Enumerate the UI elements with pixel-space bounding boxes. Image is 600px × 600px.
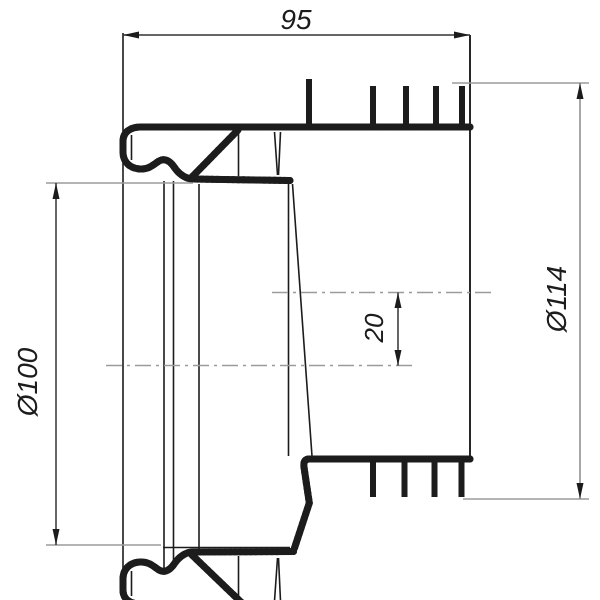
dim-text-20: 20 [359,313,389,343]
dim-text-95: 95 [280,4,312,35]
arrowhead-d100-bottom [53,529,60,545]
dim-text-d100: Ø100 [12,347,43,417]
bottom-rib-edge-a [275,558,278,600]
bottom-rib-edge-b [279,558,281,600]
dim-text-d114: Ø114 [541,266,572,333]
arrowhead-95-left [123,32,139,39]
dimension-diameter-114: Ø114 [541,83,584,499]
outlet-bottom-wall [295,459,471,548]
wall-bead-texture [123,79,470,600]
edge-lines [123,33,470,600]
part-section-walls [123,79,470,600]
dimension-diameter-100: Ø100 [12,183,60,545]
dimension-length-95: 95 [123,4,470,39]
top-rib-edge-b [279,132,281,175]
arrowhead-d114-top [577,83,584,99]
cone-silhouette-edge [293,184,313,456]
technical-drawing: 95 Ø100 Ø114 20 [0,0,600,600]
extension-lines [46,83,589,545]
dimension-offset-20: 20 [359,293,402,366]
arrowhead-d100-top [53,183,60,199]
arrowhead-95-right [454,32,470,39]
arrowhead-20-top [395,293,402,309]
top-rib-edge-a [275,132,278,175]
arrowhead-d114-bottom [577,483,584,499]
arrowhead-20-bottom [395,350,402,366]
